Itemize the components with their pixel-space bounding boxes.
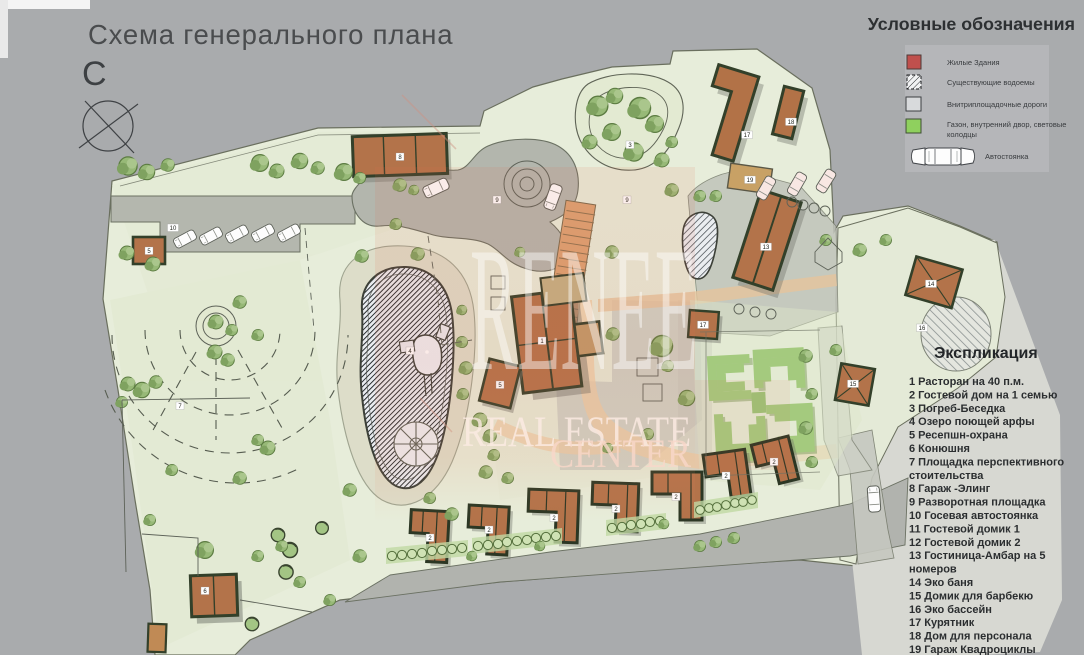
svg-text:6 Конюшня: 6 Конюшня bbox=[909, 443, 970, 455]
svg-text:2 Гостевой дом на 1 семью: 2 Гостевой дом на 1 семью bbox=[909, 389, 1057, 401]
svg-text:16: 16 bbox=[919, 326, 926, 332]
svg-text:номеров: номеров bbox=[909, 564, 957, 576]
svg-text:7 Площадка перспективного: 7 Площадка перспективного bbox=[909, 456, 1064, 468]
svg-text:13: 13 bbox=[763, 245, 770, 251]
svg-text:10: 10 bbox=[170, 226, 177, 232]
svg-text:17 Курятник: 17 Курятник bbox=[909, 617, 975, 629]
svg-text:Газон, внутренний двор, светов: Газон, внутренний двор, световые bbox=[947, 120, 1066, 129]
svg-text:Существующие водоемы: Существующие водоемы bbox=[947, 78, 1035, 87]
svg-text:С: С bbox=[82, 55, 107, 93]
svg-text:стоительства: стоительства bbox=[909, 470, 984, 482]
svg-text:17: 17 bbox=[700, 323, 707, 329]
svg-text:1 Расторан на 40 п.м.: 1 Расторан на 40 п.м. bbox=[909, 376, 1024, 388]
svg-text:CENTER: CENTER bbox=[550, 431, 691, 476]
svg-text:Внитриплощадочные дороги: Внитриплощадочные дороги bbox=[947, 100, 1047, 109]
svg-text:17: 17 bbox=[744, 133, 751, 139]
svg-text:колодцы: колодцы bbox=[947, 130, 977, 139]
svg-text:Жилые Здания: Жилые Здания bbox=[947, 58, 1000, 67]
svg-text:Автостоянка: Автостоянка bbox=[985, 152, 1029, 161]
svg-text:15: 15 bbox=[850, 382, 857, 388]
svg-text:19 Гараж Квадроциклы: 19 Гараж Квадроциклы bbox=[909, 644, 1036, 655]
svg-text:12 Гостевой домик 2: 12 Гостевой домик 2 bbox=[909, 537, 1020, 549]
svg-text:19: 19 bbox=[747, 178, 754, 184]
svg-text:RENEE: RENEE bbox=[470, 210, 698, 408]
svg-text:5 Ресепшн-охрана: 5 Ресепшн-охрана bbox=[909, 430, 1009, 442]
svg-text:Условные обозначения: Условные обозначения bbox=[868, 14, 1075, 34]
svg-text:8 Гараж -Элинг: 8 Гараж -Элинг bbox=[909, 483, 991, 495]
svg-text:14: 14 bbox=[928, 282, 935, 288]
svg-text:9 Разворотная площадка: 9 Разворотная площадка bbox=[909, 497, 1046, 509]
svg-text:11 Гостевой домик 1: 11 Гостевой домик 1 bbox=[909, 523, 1020, 535]
svg-text:13 Гостиница-Амбар на 5: 13 Гостиница-Амбар на 5 bbox=[909, 550, 1045, 562]
svg-text:Экспликация: Экспликация bbox=[934, 345, 1038, 362]
svg-text:18 Дом для персонала: 18 Дом для персонала bbox=[909, 631, 1033, 643]
svg-text:15 Домик для барбекю: 15 Домик для барбекю bbox=[909, 590, 1033, 602]
svg-text:10 Госевая автостоянка: 10 Госевая автостоянка bbox=[909, 510, 1039, 522]
svg-text:4 Озеро поющей арфы: 4 Озеро поющей арфы bbox=[909, 416, 1035, 428]
svg-text:14 Эко баня: 14 Эко баня bbox=[909, 577, 973, 589]
svg-text:Схема генерального плана: Схема генерального плана bbox=[88, 19, 453, 50]
svg-text:18: 18 bbox=[788, 120, 795, 126]
svg-text:16 Эко бассейн: 16 Эко бассейн bbox=[909, 604, 992, 616]
svg-text:3 Погреб-Беседка: 3 Погреб-Беседка bbox=[909, 403, 1006, 415]
